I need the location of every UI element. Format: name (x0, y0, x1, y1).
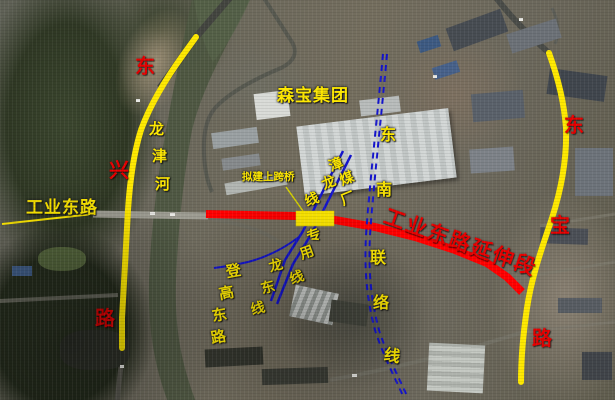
label-industrial-east-road: 工业东路 (26, 200, 98, 217)
label-char: 用 (298, 244, 316, 262)
label-char: 路 (210, 329, 227, 346)
label-char: 龙 (267, 257, 284, 274)
label-char: 龙 (149, 122, 164, 137)
label-senbao-group: 森宝集团 (277, 88, 349, 105)
label-char: 路 (532, 328, 552, 348)
label-char: 东 (564, 115, 584, 135)
label-char: 宝 (550, 215, 570, 235)
label-char: 龙 (320, 174, 338, 192)
label-char: 兴 (109, 160, 129, 180)
label-char: 线 (249, 300, 266, 317)
label-char: 津 (152, 149, 167, 164)
label-char: 线 (288, 269, 306, 287)
label-proposed-overpass-bridge: 拟建上跨桥 (242, 172, 295, 183)
label-char: 线 (303, 191, 321, 209)
label-char: 高 (218, 285, 235, 302)
labels-layer: 工业东路 森宝集团 拟建上跨桥 工业东路延伸段 龙 津 河 东 兴 路 东 宝 … (0, 0, 615, 400)
label-char: 厂 (339, 190, 357, 208)
label-char: 路 (95, 308, 115, 328)
label-char: 络 (373, 295, 389, 311)
label-char: 登 (225, 263, 242, 280)
label-char: 东 (380, 127, 396, 143)
label-char: 东 (259, 279, 276, 296)
label-char: 南 (376, 182, 392, 198)
satellite-annotation-map: 工业东路 森宝集团 拟建上跨桥 工业东路延伸段 龙 津 河 东 兴 路 东 宝 … (0, 0, 615, 400)
label-char: 联 (370, 250, 386, 266)
label-char: 线 (383, 347, 402, 366)
label-char: 专 (305, 227, 323, 245)
label-char: 煤 (338, 170, 356, 188)
label-extension-section: 工业东路延伸段 (381, 206, 540, 280)
label-char: 东 (135, 56, 155, 76)
label-char: 东 (211, 307, 228, 324)
label-char: 河 (155, 177, 170, 192)
